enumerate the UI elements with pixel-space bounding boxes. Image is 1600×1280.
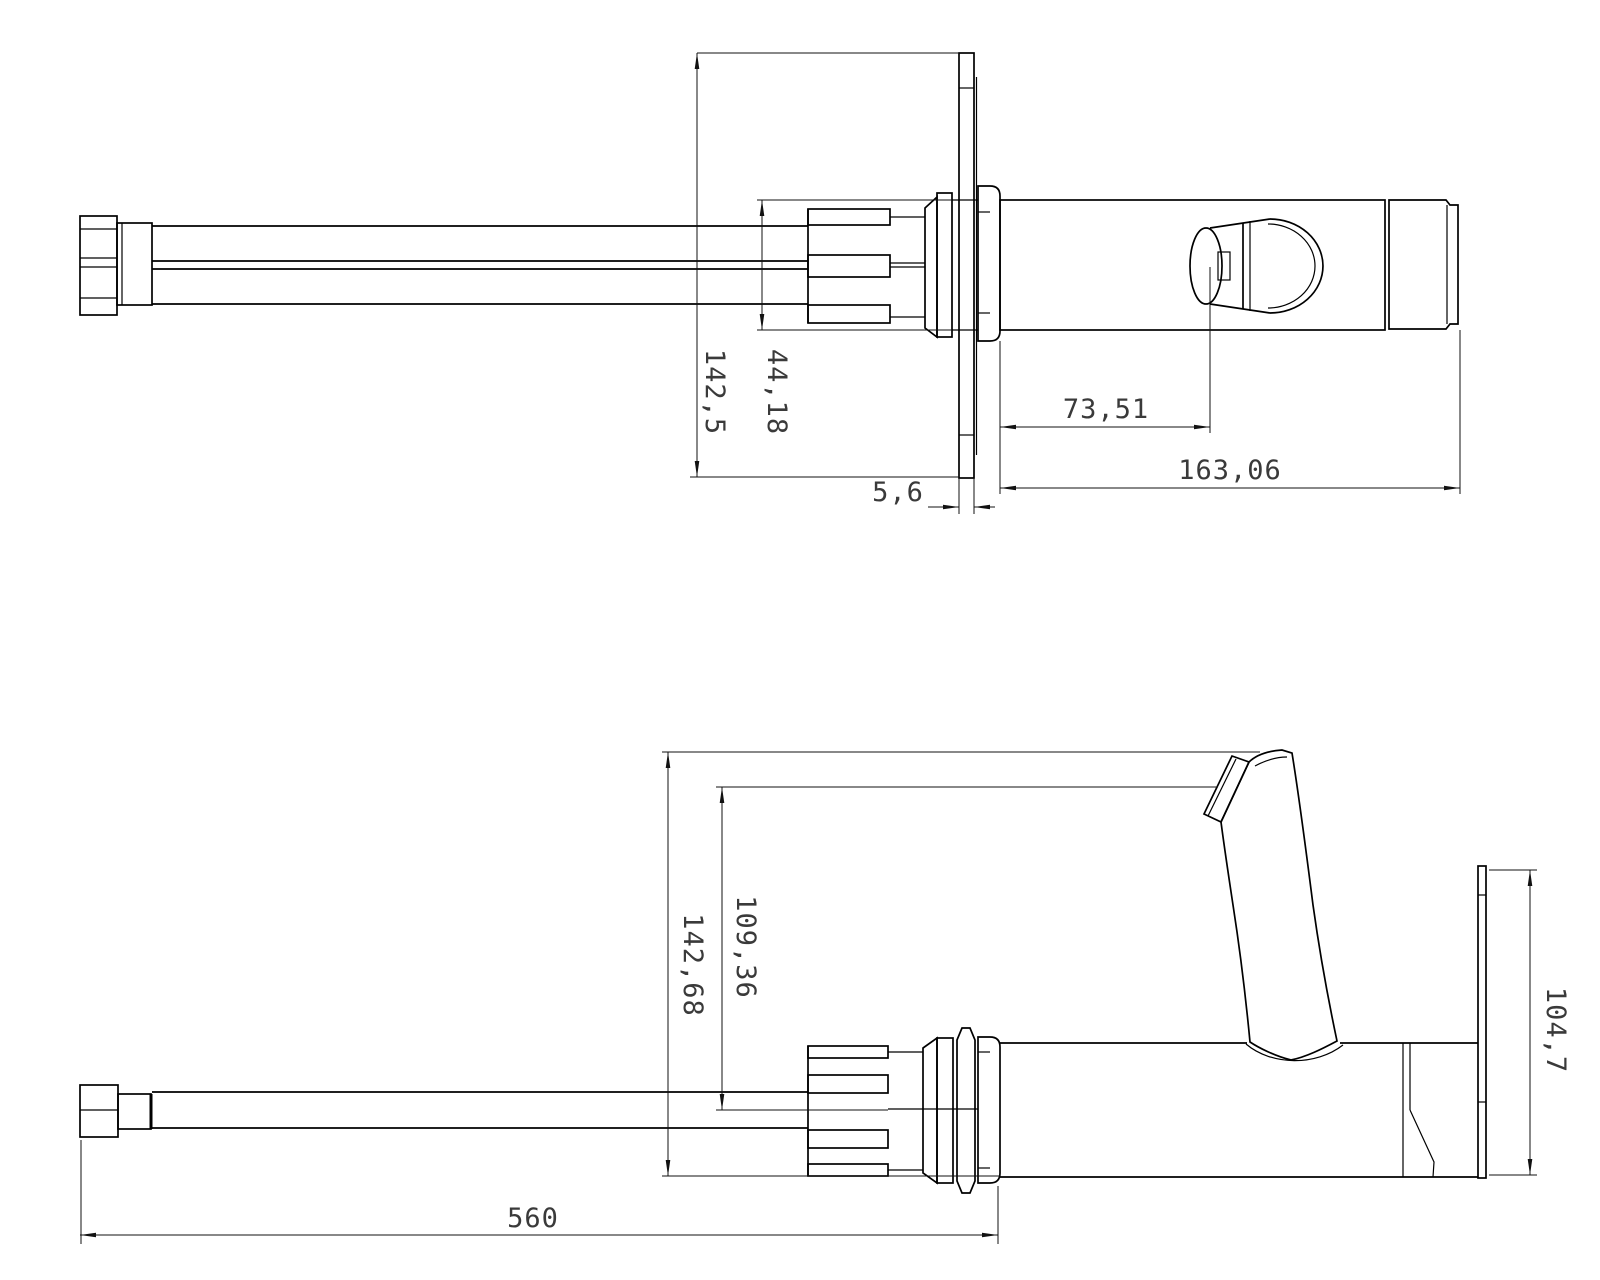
top-view: 142,5 44,18 5,6 73,51 163,06 <box>80 53 1460 514</box>
lever-handle <box>1204 750 1343 1061</box>
dim-label-109-36: 109,36 <box>730 895 761 999</box>
end-cap-outline <box>1389 200 1458 329</box>
fitting-sleeve <box>118 1094 151 1129</box>
cartridge-prongs <box>808 209 925 323</box>
prong <box>808 305 890 323</box>
sleeve-barrel <box>937 1038 953 1183</box>
knob-flat <box>1218 252 1230 280</box>
faucet-technical-drawing: 142,5 44,18 5,6 73,51 163,06 <box>0 0 1600 1280</box>
dim-label-104-7: 104,7 <box>1540 987 1571 1073</box>
dim-label-73-51: 73,51 <box>1063 394 1149 425</box>
wall-plate-face <box>959 53 974 478</box>
hex-nut-fitting <box>80 1085 151 1137</box>
dim-label-142-5: 142,5 <box>699 349 730 435</box>
spout-end-cap <box>1389 200 1458 329</box>
hex-nut-body <box>80 1085 118 1137</box>
prong <box>808 209 890 225</box>
prong <box>808 1164 888 1176</box>
wall-plate <box>959 53 977 478</box>
sleeve-taper <box>925 197 937 337</box>
dim-142-5: 142,5 <box>690 53 959 477</box>
hex-nut-fitting <box>80 216 152 315</box>
mounting-sleeve <box>923 1028 1000 1193</box>
dim-label-44-18: 44,18 <box>761 349 792 435</box>
prong <box>808 255 890 277</box>
wall-plate-edge <box>1478 866 1486 1178</box>
mounting-sleeve <box>925 186 1000 341</box>
supply-hoses <box>152 226 808 304</box>
knob-inner-arc <box>1268 224 1315 308</box>
supply-hose <box>152 1092 808 1128</box>
prong <box>808 1075 888 1093</box>
mounting-collar <box>978 186 1000 341</box>
handle-lever-outline <box>1221 750 1337 1060</box>
wall-plate <box>1478 866 1486 1178</box>
handle-top-contour <box>1255 757 1287 766</box>
dim-560: 560 <box>80 1140 998 1244</box>
mounting-nut <box>957 1028 975 1193</box>
mounting-collar <box>978 1037 1000 1183</box>
knob-cap-disc <box>1190 228 1222 304</box>
handle-neck-contour <box>1246 1044 1343 1061</box>
sleeve-taper <box>923 1038 937 1183</box>
cad-drawing-canvas: 142,5 44,18 5,6 73,51 163,06 <box>0 0 1600 1280</box>
dim-label-163-06: 163,06 <box>1178 455 1282 486</box>
dim-label-560: 560 <box>507 1203 559 1234</box>
dim-109-36: 109,36 <box>716 787 1218 1110</box>
dim-5-6: 5,6 <box>872 477 995 514</box>
prong <box>808 1046 888 1058</box>
valve-body <box>1000 200 1385 330</box>
spout-break-line <box>1410 1110 1434 1177</box>
dim-label-142-68: 142,68 <box>677 913 708 1017</box>
dim-label-5-6: 5,6 <box>872 477 924 508</box>
control-knob <box>1190 219 1323 433</box>
knob-tangent <box>1210 304 1270 313</box>
sleeve-barrel <box>937 193 952 337</box>
hex-nut-body <box>80 216 117 315</box>
faucet-body <box>1000 1043 1478 1177</box>
knob-tangent <box>1210 219 1270 228</box>
side-view: 142,68 109,36 560 104,7 <box>80 750 1571 1244</box>
prong <box>808 1130 888 1148</box>
dim-104-7: 104,7 <box>1489 870 1571 1175</box>
handle-tip-cap <box>1204 756 1249 822</box>
